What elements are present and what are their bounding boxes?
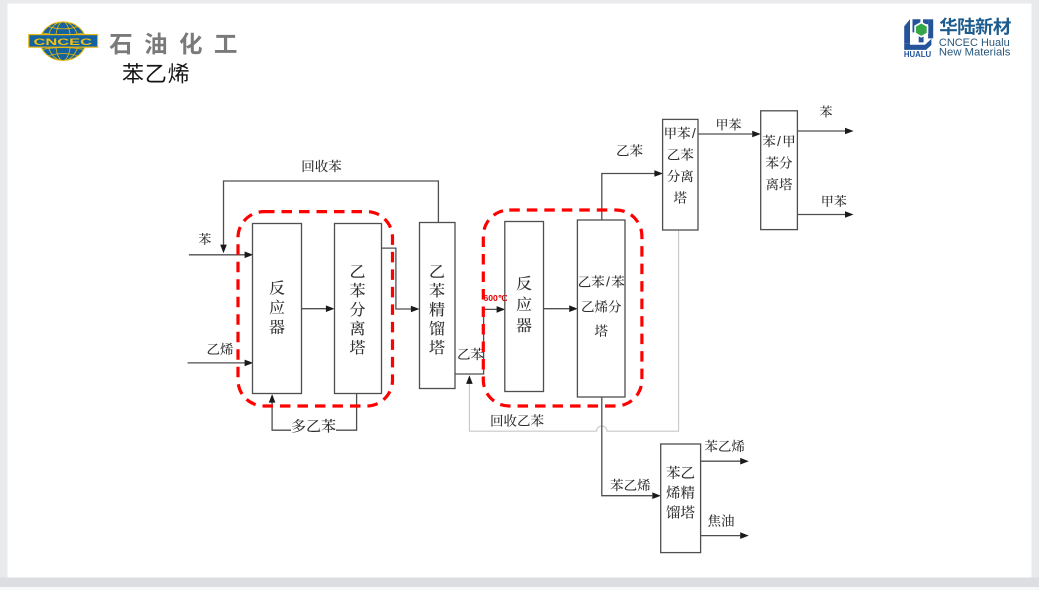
svg-text:600℃: 600℃ [484, 293, 508, 303]
svg-text:CNCEC: CNCEC [34, 37, 94, 47]
svg-text:/: / [777, 134, 781, 150]
svg-text:HUALU: HUALU [904, 50, 932, 59]
svg-text:/: / [692, 126, 696, 142]
svg-text:/: / [606, 275, 610, 291]
svg-text:New Materials: New Materials [939, 46, 1011, 58]
